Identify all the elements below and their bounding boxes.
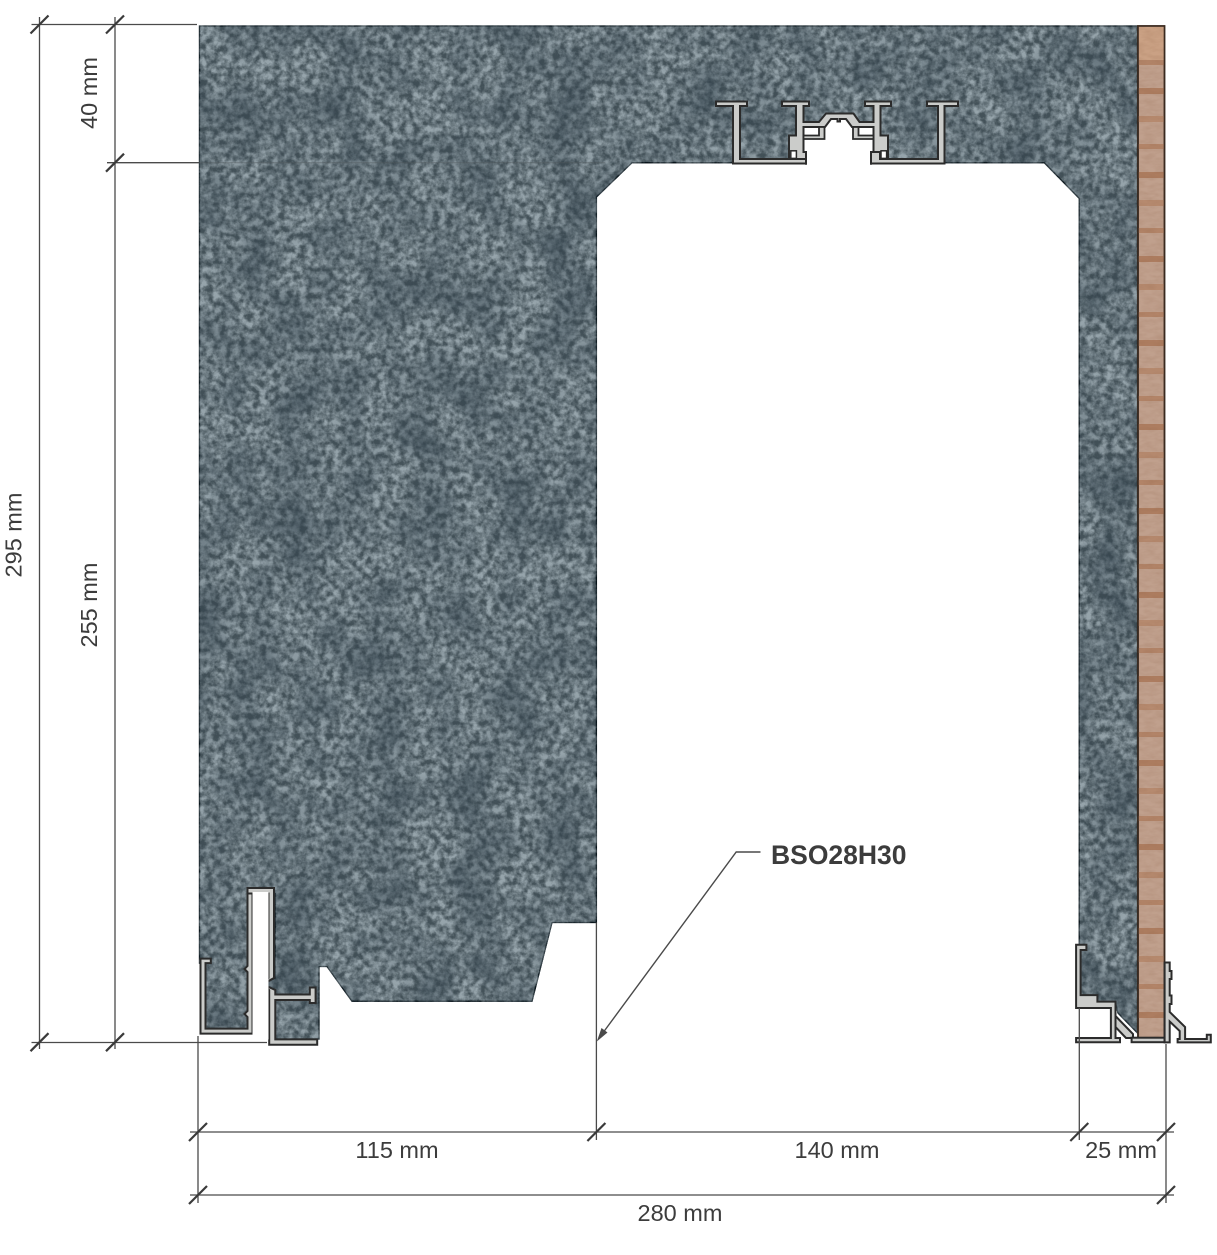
svg-text:115 mm: 115 mm bbox=[355, 1137, 438, 1163]
svg-text:255 mm: 255 mm bbox=[76, 563, 102, 648]
svg-text:295 mm: 295 mm bbox=[1, 493, 27, 578]
svg-text:40 mm: 40 mm bbox=[76, 57, 102, 129]
svg-text:BSO28H30: BSO28H30 bbox=[771, 840, 907, 870]
svg-text:25 mm: 25 mm bbox=[1085, 1137, 1157, 1163]
svg-text:140 mm: 140 mm bbox=[795, 1137, 880, 1163]
svg-text:280 mm: 280 mm bbox=[638, 1200, 723, 1226]
